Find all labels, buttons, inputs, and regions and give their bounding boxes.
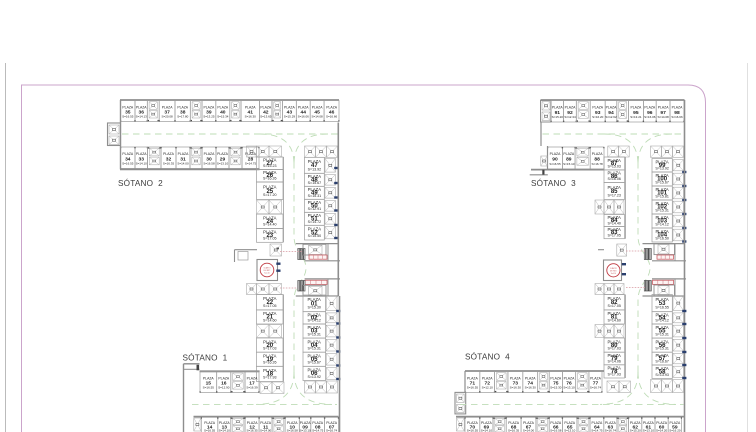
svg-text:S=16.20: S=16.20 [592, 115, 604, 119]
svg-text:PLAZA: PLAZA [203, 377, 214, 381]
svg-text:S=16.55: S=16.55 [467, 386, 479, 390]
svg-text:S=16.35: S=16.35 [246, 429, 258, 432]
svg-text:PLAZA: PLAZA [326, 105, 337, 109]
svg-text:S=16.58: S=16.58 [203, 161, 215, 165]
svg-text:S=14.06: S=14.06 [607, 359, 621, 363]
svg-text:PLAZA: PLAZA [260, 421, 271, 425]
svg-text:PLAZA: PLAZA [326, 421, 337, 425]
svg-text:S=16.39: S=16.39 [246, 386, 258, 390]
svg-text:S=14.72: S=14.72 [308, 220, 322, 224]
svg-text:PLAZA: PLAZA [481, 421, 492, 425]
svg-text:S=15.30: S=15.30 [307, 306, 321, 310]
svg-text:S=15.10: S=15.10 [563, 162, 575, 166]
svg-text:S=16.55: S=16.55 [122, 115, 134, 119]
svg-text:S=13.92: S=13.92 [307, 375, 321, 379]
svg-text:PLAZA: PLAZA [508, 421, 519, 425]
svg-text:S=14.12: S=14.12 [655, 222, 669, 226]
svg-text:S=17.80: S=17.80 [177, 115, 189, 119]
svg-text:S=12.34: S=12.34 [564, 115, 576, 119]
svg-text:PLAZA: PLAZA [643, 421, 654, 425]
svg-text:S=14.13: S=14.13 [136, 115, 148, 119]
svg-text:S=13.10: S=13.10 [299, 429, 311, 432]
svg-text:PLAZA: PLAZA [523, 421, 534, 425]
svg-text:PLAZA: PLAZA [260, 105, 271, 109]
svg-text:S=17.05: S=17.05 [607, 233, 621, 237]
svg-text:S=16.55: S=16.55 [204, 429, 216, 432]
svg-text:PLAZA: PLAZA [245, 105, 256, 109]
svg-text:S=14.20: S=14.20 [656, 429, 668, 432]
svg-text:S=17.05: S=17.05 [607, 304, 621, 308]
svg-text:SÓTANO 4: SÓTANO 4 [465, 352, 510, 362]
svg-text:SÓTANO 2: SÓTANO 2 [118, 178, 163, 188]
svg-text:PLAZA: PLAZA [247, 421, 258, 425]
svg-text:PLAZA: PLAZA [122, 105, 133, 109]
svg-text:SÓTANO 1: SÓTANO 1 [183, 353, 228, 363]
svg-text:PLAZA: PLAZA [136, 152, 147, 156]
svg-text:S=16.55: S=16.55 [122, 161, 134, 165]
svg-text:S=4.20: S=4.20 [264, 273, 269, 275]
svg-text:PLAZA: PLAZA [284, 105, 295, 109]
svg-text:S=13.10: S=13.10 [563, 386, 575, 390]
svg-text:S=13.10: S=13.10 [643, 429, 655, 432]
svg-text:S=15.67: S=15.67 [308, 181, 322, 185]
svg-text:S=13.92: S=13.92 [308, 167, 322, 171]
svg-text:S=16.35: S=16.35 [163, 161, 175, 165]
svg-text:S=16.74: S=16.74 [326, 429, 338, 432]
svg-text:S=16.06: S=16.06 [644, 115, 656, 119]
svg-text:S=13.92: S=13.92 [655, 166, 669, 170]
svg-text:SÓTANO 3: SÓTANO 3 [531, 178, 576, 188]
svg-text:PLAZA: PLAZA [482, 376, 493, 380]
svg-text:S=14.00: S=14.00 [260, 429, 272, 432]
svg-text:S=13.21: S=13.21 [630, 115, 642, 119]
svg-text:S=12.62: S=12.62 [605, 115, 617, 119]
svg-text:PLAZA: PLAZA [564, 376, 575, 380]
svg-text:S=13.10: S=13.10 [217, 161, 229, 165]
svg-text:S=16.06: S=16.06 [298, 115, 310, 119]
svg-text:S=13.25: S=13.25 [203, 115, 215, 119]
svg-text:S=4.20: S=4.20 [611, 273, 616, 275]
svg-text:PLAZA: PLAZA [312, 421, 323, 425]
svg-text:S=17.93: S=17.93 [263, 376, 277, 380]
svg-text:S=13.93: S=13.93 [655, 373, 669, 377]
svg-text:S=16.26: S=16.26 [263, 177, 277, 181]
svg-text:PLAZA: PLAZA [550, 376, 561, 380]
svg-text:S=15.34: S=15.34 [217, 115, 229, 119]
svg-text:PLAZA: PLAZA [217, 152, 228, 156]
svg-text:PLAZA: PLAZA [217, 105, 228, 109]
svg-text:S=12.91: S=12.91 [308, 207, 322, 211]
svg-text:PLAZA: PLAZA [204, 105, 215, 109]
svg-text:S=16.58: S=16.58 [550, 429, 562, 432]
svg-text:PLAZA: PLAZA [670, 421, 681, 425]
svg-text:S=15.30: S=15.30 [550, 386, 562, 390]
svg-text:S=15.31: S=15.31 [655, 208, 669, 212]
svg-text:S=14.75: S=14.75 [591, 429, 603, 432]
svg-text:S=14.08: S=14.08 [657, 115, 669, 119]
svg-text:PLAZA: PLAZA [510, 376, 521, 380]
svg-text:S=16.66: S=16.66 [326, 115, 338, 119]
svg-text:S=17.05: S=17.05 [263, 304, 277, 308]
svg-text:PLAZA: PLAZA [287, 421, 298, 425]
svg-text:S=16.55: S=16.55 [203, 386, 215, 390]
svg-text:PLAZA: PLAZA [563, 152, 574, 156]
svg-text:S=17.23: S=17.23 [607, 193, 621, 197]
svg-text:S=13.10: S=13.10 [564, 429, 576, 432]
svg-text:PLAZA: PLAZA [550, 421, 561, 425]
svg-text:PLAZA: PLAZA [672, 106, 683, 110]
svg-text:PLAZA: PLAZA [312, 105, 323, 109]
svg-text:S=15.31: S=15.31 [655, 347, 669, 351]
svg-text:S=14.75: S=14.75 [312, 429, 324, 432]
svg-text:PLAZA: PLAZA [592, 421, 603, 425]
svg-text:S=17.05: S=17.05 [263, 237, 277, 241]
svg-text:S=16.55: S=16.55 [549, 162, 561, 166]
svg-text:S=15.23: S=15.23 [263, 164, 277, 168]
svg-text:S=17.03: S=17.03 [607, 347, 621, 351]
svg-text:S=15.20: S=15.20 [552, 115, 564, 119]
svg-text:PLAZA: PLAZA [467, 421, 478, 425]
svg-text:S=15.67: S=15.67 [307, 361, 321, 365]
svg-text:S=15.31: S=15.31 [655, 332, 669, 336]
svg-text:S=16.58: S=16.58 [287, 429, 299, 432]
svg-text:PLAZA: PLAZA [592, 106, 603, 110]
svg-text:S=16.20: S=16.20 [669, 429, 681, 432]
svg-text:PLAZA: PLAZA [644, 106, 655, 110]
svg-text:S=16.66: S=16.66 [671, 115, 683, 119]
svg-text:S=14.00: S=14.00 [177, 161, 189, 165]
svg-text:PLAZA: PLAZA [122, 152, 133, 156]
svg-text:S=14.12: S=14.12 [655, 319, 669, 323]
svg-text:PLAZA: PLAZA [219, 421, 230, 425]
svg-text:S=16.78: S=16.78 [591, 162, 603, 166]
svg-text:S=15.81: S=15.81 [655, 194, 669, 198]
svg-text:PLAZA: PLAZA [218, 377, 229, 381]
svg-text:S=15.50: S=15.50 [308, 234, 322, 238]
svg-text:PLAZA: PLAZA [204, 152, 215, 156]
svg-text:S=16.30: S=16.30 [245, 115, 257, 119]
svg-text:PLAZA: PLAZA [658, 106, 669, 110]
svg-text:S=15.20: S=15.20 [630, 429, 642, 432]
svg-text:S=14.40: S=14.40 [607, 221, 621, 225]
svg-text:PLAZA: PLAZA [525, 376, 536, 380]
svg-text:S=15.31: S=15.31 [308, 194, 322, 198]
svg-text:PLAZA: PLAZA [247, 377, 258, 381]
svg-text:S=14.60: S=14.60 [263, 318, 277, 322]
svg-text:PLAZA: PLAZA [204, 421, 215, 425]
svg-text:S=17.03: S=17.03 [263, 347, 277, 351]
svg-text:S=12.10: S=12.10 [482, 386, 494, 390]
svg-text:PLAZA: PLAZA [177, 105, 188, 109]
svg-text:S=14.10: S=14.10 [481, 429, 493, 432]
svg-text:PLAZA: PLAZA [136, 105, 147, 109]
svg-text:S=13.65: S=13.65 [260, 115, 272, 119]
svg-text:S=14.75: S=14.75 [245, 161, 257, 165]
svg-text:PLAZA: PLAZA [592, 152, 603, 156]
svg-text:S=16.30: S=16.30 [525, 386, 537, 390]
svg-text:S=15.31: S=15.31 [307, 332, 321, 336]
svg-text:PLAZA: PLAZA [163, 152, 174, 156]
svg-text:S=12.90: S=12.90 [218, 386, 230, 390]
svg-text:PLAZA: PLAZA [467, 376, 478, 380]
svg-text:S=15.31: S=15.31 [307, 347, 321, 351]
svg-text:S=16.50: S=16.50 [655, 236, 669, 240]
svg-text:S=17.93: S=17.93 [607, 373, 621, 377]
svg-text:S=14.10: S=14.10 [136, 161, 148, 165]
svg-text:PLAZA: PLAZA [605, 421, 616, 425]
svg-text:S=14.10: S=14.10 [219, 429, 231, 432]
svg-text:PLAZA: PLAZA [564, 421, 575, 425]
svg-text:S=16.74: S=16.74 [590, 386, 602, 390]
svg-text:PLAZA: PLAZA [606, 106, 617, 110]
svg-text:PLAZA: PLAZA [630, 421, 641, 425]
svg-text:S=15.29: S=15.29 [284, 115, 296, 119]
svg-text:S=20.08: S=20.08 [161, 115, 173, 119]
svg-text:PLAZA: PLAZA [552, 106, 563, 110]
svg-text:S=14.08: S=14.08 [311, 115, 323, 119]
svg-text:PLAZA: PLAZA [631, 106, 642, 110]
svg-text:S=16.55: S=16.55 [467, 429, 479, 432]
svg-text:S=16.06: S=16.06 [607, 177, 621, 181]
svg-text:S=16.55: S=16.55 [655, 305, 669, 309]
svg-text:S=16.74: S=16.74 [605, 429, 617, 432]
svg-text:S=14.60: S=14.60 [607, 318, 621, 322]
svg-text:S=16.35: S=16.35 [508, 429, 520, 432]
svg-text:S=17.20: S=17.20 [263, 193, 277, 197]
svg-text:S=16.30: S=16.30 [510, 386, 522, 390]
svg-text:S=15.03: S=15.03 [607, 164, 621, 168]
svg-text:PLAZA: PLAZA [298, 105, 309, 109]
svg-text:PLAZA: PLAZA [178, 152, 189, 156]
svg-text:PLAZA: PLAZA [590, 376, 601, 380]
svg-text:S=14.40: S=14.40 [263, 223, 277, 227]
svg-text:PLAZA: PLAZA [300, 421, 311, 425]
svg-text:S=14.00: S=14.00 [523, 429, 535, 432]
svg-text:S=15.67: S=15.67 [655, 180, 669, 184]
svg-text:PLAZA: PLAZA [565, 106, 576, 110]
svg-text:PLAZA: PLAZA [656, 421, 667, 425]
svg-text:S=14.12: S=14.12 [307, 319, 321, 323]
svg-text:PLAZA: PLAZA [162, 105, 173, 109]
svg-text:S=16.67: S=16.67 [655, 360, 669, 364]
svg-text:S=16.26: S=16.26 [263, 361, 277, 365]
svg-text:PLAZA: PLAZA [550, 152, 561, 156]
